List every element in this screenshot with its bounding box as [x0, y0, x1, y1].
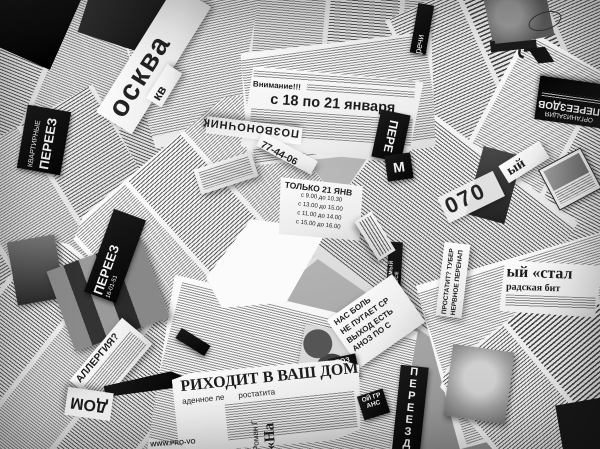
organizatsiya-pereezdov-ad: ОРГАНИЗАЦИЯ ПЕРЕЕЗДОВ [534, 75, 600, 128]
tolko-flyer: ТОЛЬКО 21 ЯНВ с 9.00 до 10.30 с 13.00 до… [274, 176, 366, 244]
newspaper-collage-photo: осква кв КВАРТИРНЫЕ ПЕРЕЕЗ ПЕРЕЕЗ 16-01-… [0, 0, 600, 449]
pereezdov-vertical-label: ПЕРЕЕЗДОВ [399, 366, 421, 449]
gun-photo [489, 31, 558, 70]
vnimanie-label: Внимание!!! [253, 79, 301, 91]
fine-print [505, 294, 595, 309]
face-photo [443, 344, 514, 424]
website-text: WWW.PRO-VO [150, 438, 196, 448]
stal-headline-scrap: ый «стал радская бит [499, 260, 600, 318]
roman-title-strip: Роман Г «На [244, 389, 284, 449]
website-text-strip: WWW.PRO-VO [149, 430, 196, 449]
gun-icon [489, 31, 558, 70]
m-letter: М [392, 158, 406, 175]
roman-title: «На [259, 389, 280, 449]
pere-label: ПЕРЕ [380, 113, 403, 159]
stal-subheadline: радская бит [506, 281, 596, 295]
dom-headline: ДОМ [69, 393, 108, 416]
m-black-scrap: М [384, 152, 413, 181]
